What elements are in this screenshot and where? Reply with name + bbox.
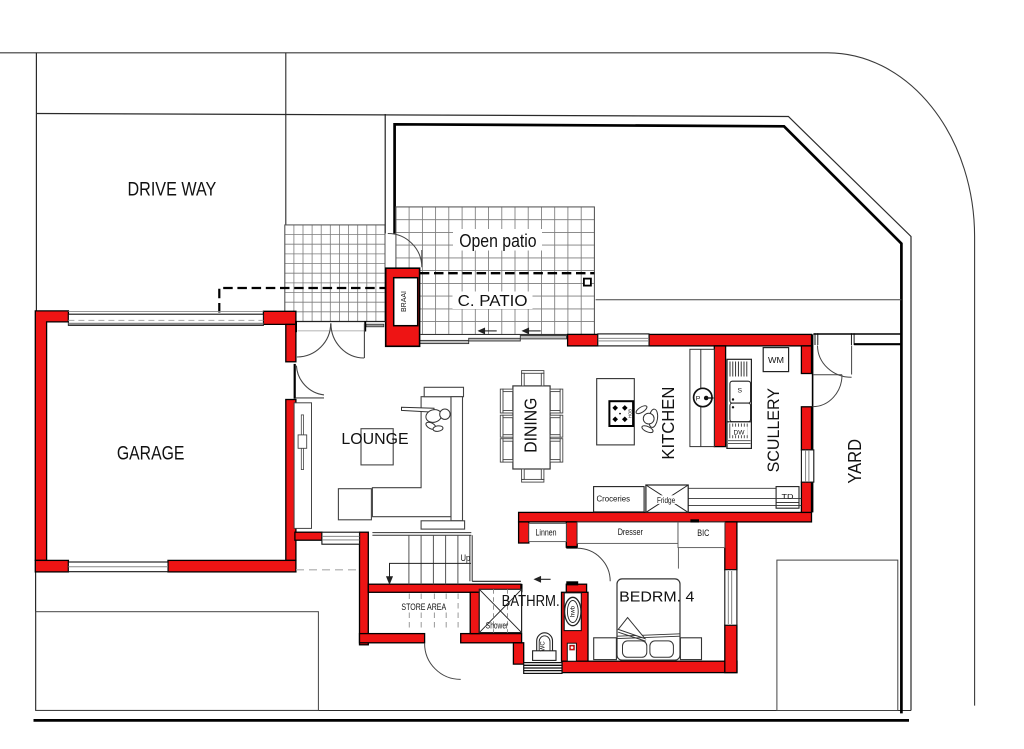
- svg-text:Up: Up: [461, 553, 471, 564]
- svg-text:WM: WM: [768, 355, 784, 365]
- svg-text:DINING: DINING: [521, 398, 541, 453]
- svg-text:HOB: HOB: [628, 409, 633, 418]
- svg-text:KITCHEN: KITCHEN: [658, 387, 678, 460]
- svg-text:SCULLERY: SCULLERY: [764, 388, 783, 472]
- svg-text:S: S: [738, 388, 743, 395]
- svg-text:Fridge: Fridge: [657, 496, 675, 505]
- svg-text:Dresser: Dresser: [618, 527, 643, 537]
- svg-text:TD: TD: [782, 492, 795, 501]
- svg-text:BRAAI: BRAAI: [401, 291, 408, 312]
- svg-text:WC: WC: [541, 641, 547, 652]
- svg-text:DW: DW: [734, 429, 746, 436]
- svg-text:Open patio: Open patio: [459, 231, 536, 251]
- svg-text:BEDRM. 4: BEDRM. 4: [619, 589, 694, 606]
- svg-text:Croceries: Croceries: [597, 494, 631, 503]
- svg-text:BATHRM.: BATHRM.: [502, 593, 560, 610]
- svg-text:BIC: BIC: [697, 528, 709, 538]
- svg-text:C. PATIO: C. PATIO: [458, 293, 528, 310]
- svg-text:hwb: hwb: [570, 605, 576, 617]
- svg-text:P: P: [696, 396, 701, 403]
- svg-text:YARD: YARD: [845, 439, 865, 484]
- svg-text:STORE AREA: STORE AREA: [401, 602, 446, 612]
- svg-text:LOUNGE: LOUNGE: [341, 431, 408, 448]
- svg-text:Shower: Shower: [486, 621, 508, 631]
- svg-text:GARAGE: GARAGE: [117, 443, 184, 465]
- svg-text:Linnen: Linnen: [536, 528, 557, 538]
- svg-text:DRIVE WAY: DRIVE WAY: [128, 179, 217, 200]
